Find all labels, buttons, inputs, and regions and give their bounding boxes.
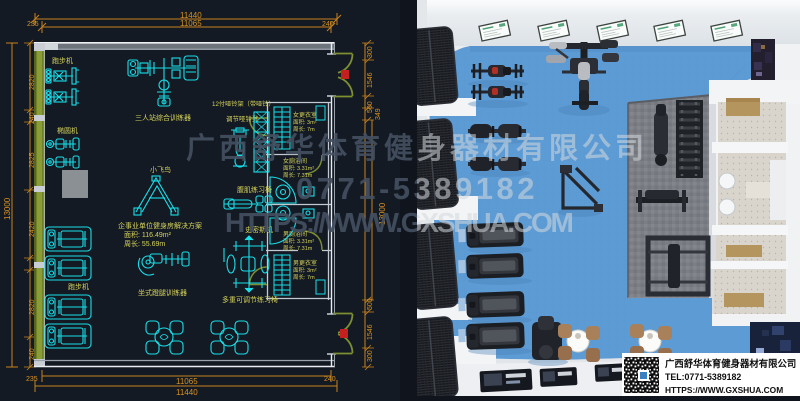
svg-text:235: 235 [27, 21, 39, 28]
svg-text:坐式蹬腿训练器: 坐式蹬腿训练器 [138, 288, 187, 297]
svg-text:300: 300 [367, 350, 374, 362]
svg-text:TEL:0771-5389182: TEL:0771-5389182 [665, 372, 741, 382]
svg-text:多重可调节练习椅: 多重可调节练习椅 [222, 295, 278, 304]
svg-text:男更衣室: 男更衣室 [293, 259, 317, 267]
svg-text:11065: 11065 [180, 19, 202, 28]
svg-text:1546: 1546 [367, 324, 374, 340]
svg-text:女更衣室: 女更衣室 [293, 111, 317, 119]
svg-text:11440: 11440 [176, 388, 198, 397]
svg-text:500: 500 [367, 298, 374, 310]
svg-text:240: 240 [322, 21, 334, 28]
svg-text:周长: 55.69m: 周长: 55.69m [124, 239, 165, 248]
svg-text:企事业单位健身房解决方案: 企事业单位健身房解决方案 [118, 221, 202, 230]
svg-text:13000: 13000 [3, 197, 12, 220]
svg-text:面积: 116.49m²: 面积: 116.49m² [124, 230, 172, 239]
svg-text:三人站综合训练器: 三人站综合训练器 [135, 113, 191, 122]
svg-text:腹肌练习椅: 腹肌练习椅 [237, 185, 272, 194]
svg-text:面积: 3m²: 面积: 3m² [293, 267, 317, 274]
svg-text:12付哑铃架（带哑铃）: 12付哑铃架（带哑铃） [212, 100, 275, 108]
svg-text:240: 240 [324, 376, 336, 383]
svg-text:周长: 7m: 周长: 7m [293, 273, 315, 281]
svg-text:椭圆机: 椭圆机 [57, 126, 78, 135]
svg-text:1546: 1546 [367, 72, 374, 88]
svg-text:周长: 7.31m: 周长: 7.31m [283, 244, 313, 252]
svg-text:235: 235 [26, 376, 38, 383]
svg-text:面积: 3m²: 面积: 3m² [293, 119, 317, 126]
svg-text:500: 500 [367, 101, 374, 113]
svg-text:周长: 7m: 周长: 7m [293, 125, 315, 133]
svg-text:HTTPS://WWW.GXSHUA.COM: HTTPS://WWW.GXSHUA.COM [665, 385, 783, 395]
svg-text:跑步机: 跑步机 [68, 282, 89, 291]
svg-text:349: 349 [375, 108, 382, 120]
svg-text:300: 300 [367, 46, 374, 58]
svg-text:跑步机: 跑步机 [52, 56, 73, 65]
svg-text:面积: 3.31m²: 面积: 3.31m² [283, 238, 314, 245]
svg-text:小飞鸟: 小飞鸟 [150, 165, 171, 174]
svg-text:广西舒华体育健身器材有限公司: 广西舒华体育健身器材有限公司 [665, 358, 796, 369]
svg-text:11065: 11065 [176, 377, 198, 386]
